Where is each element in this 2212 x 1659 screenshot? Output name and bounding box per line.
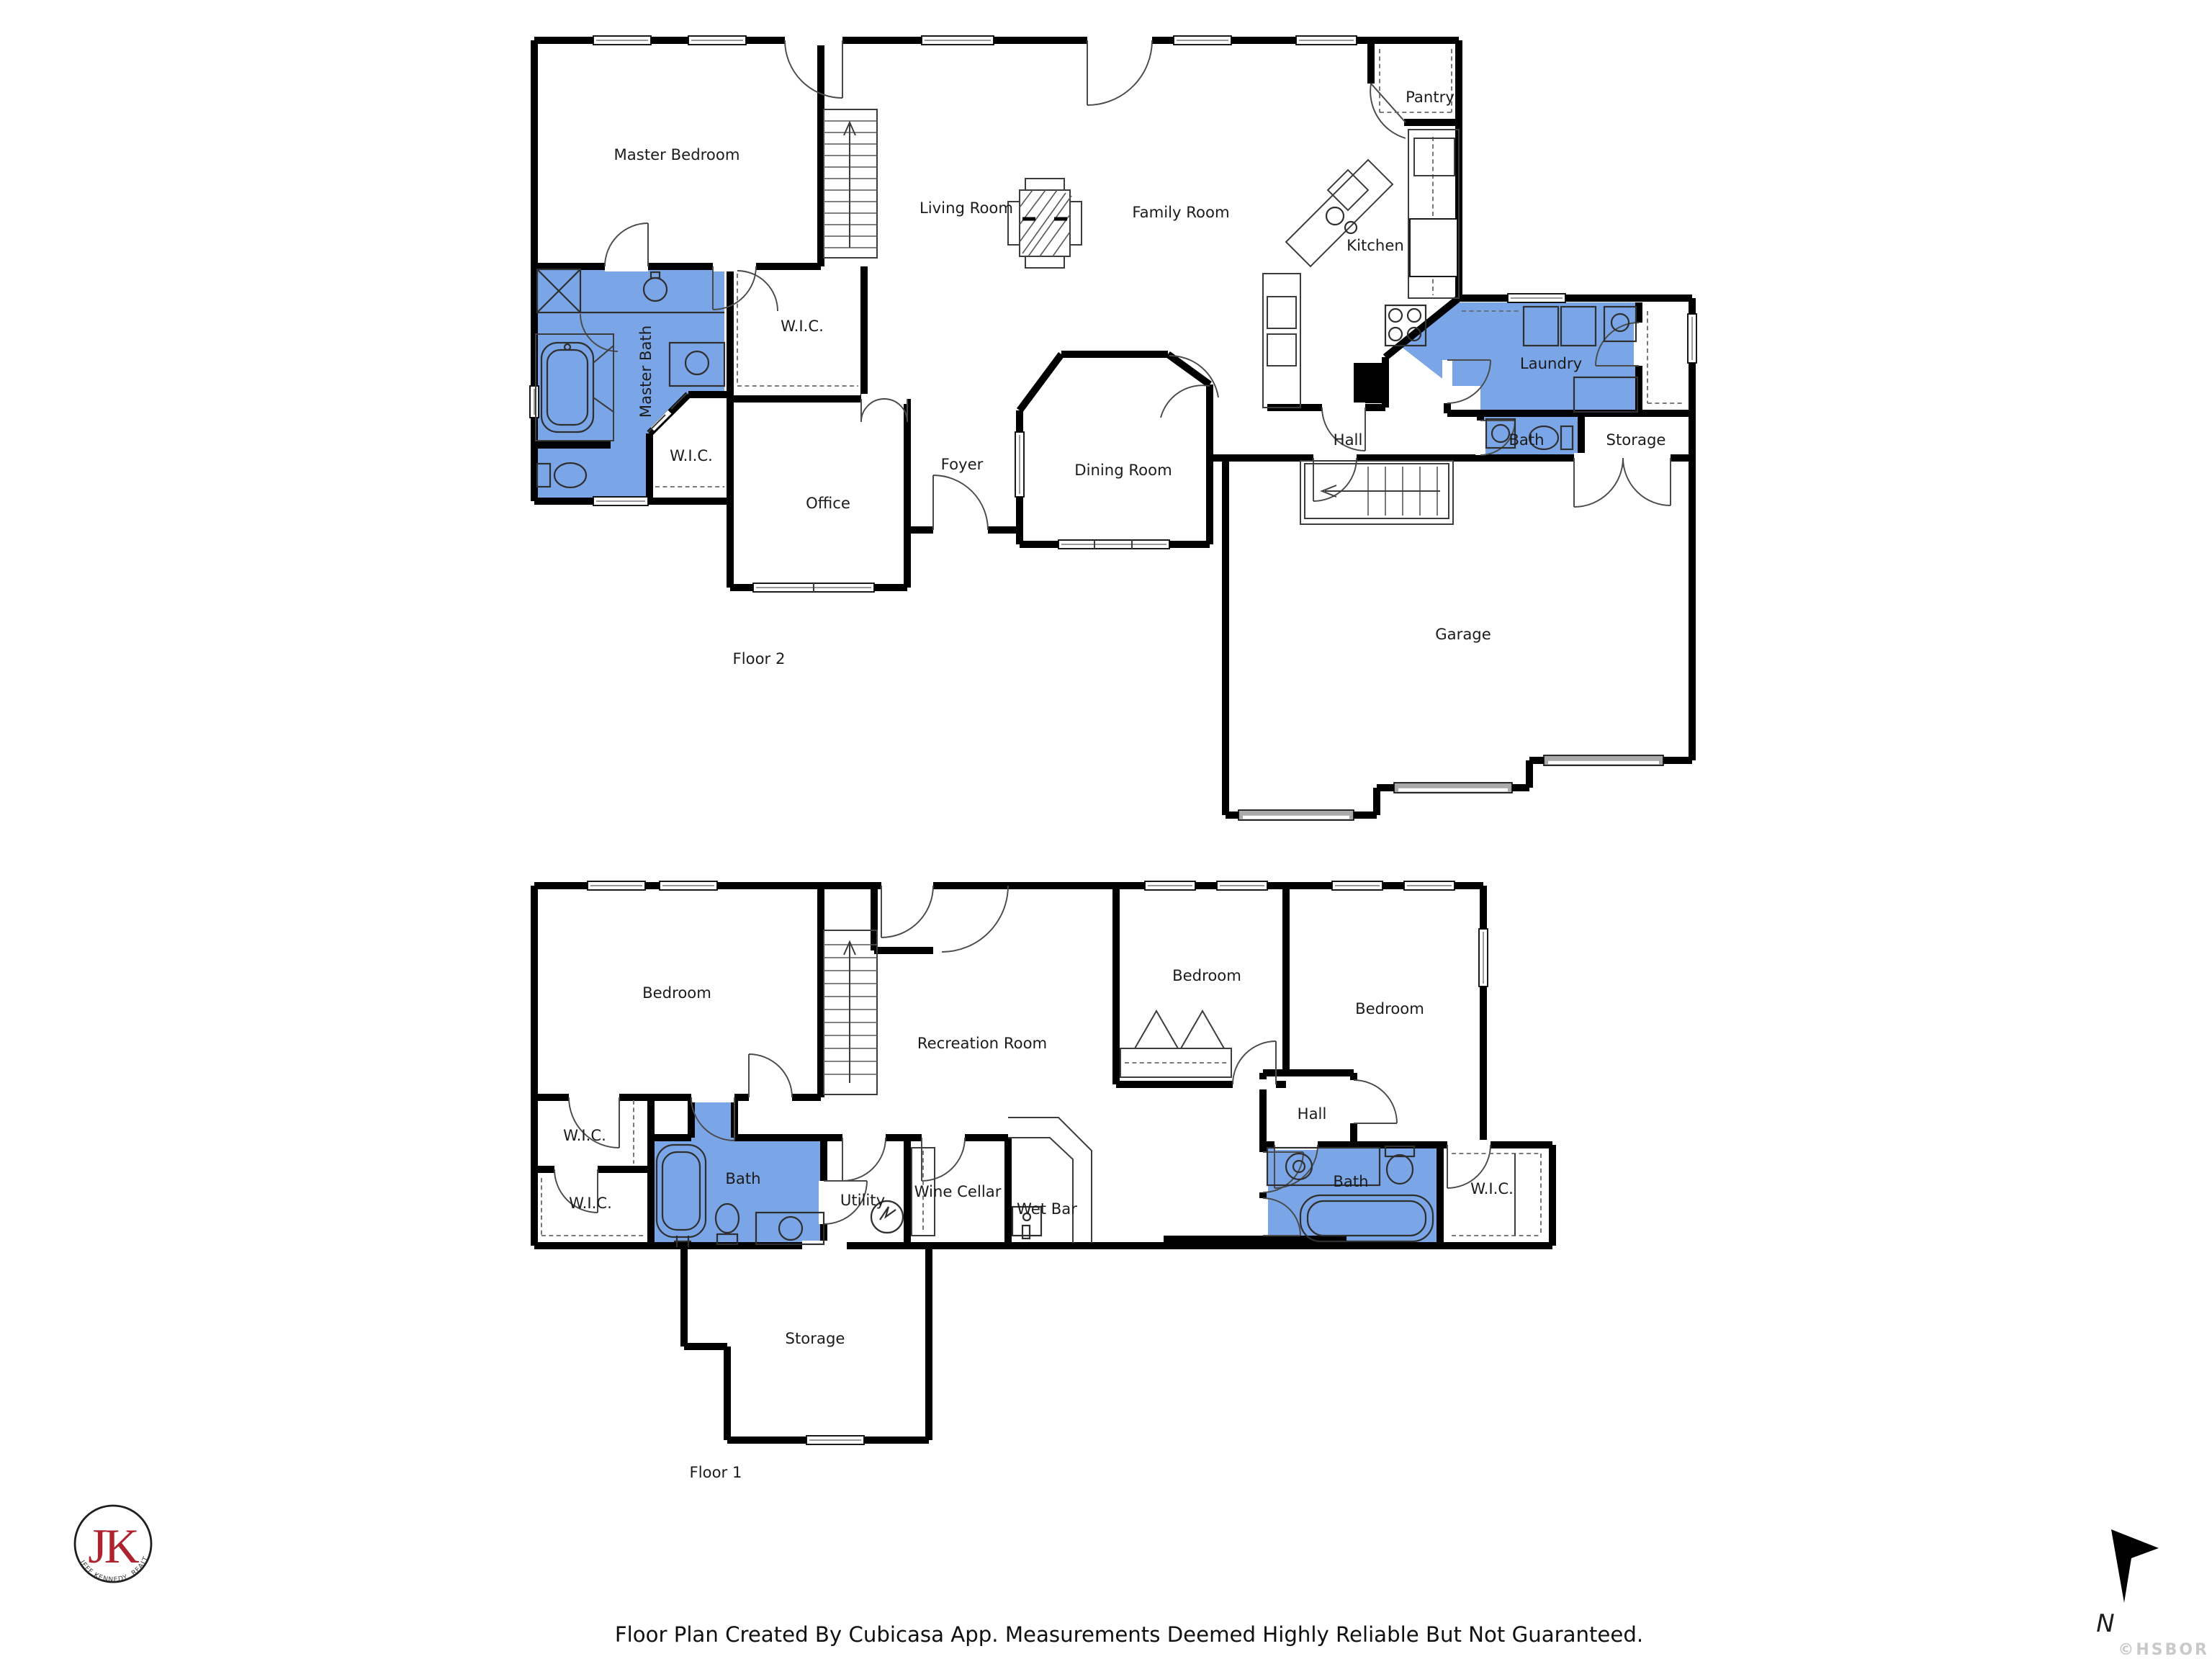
north-arrow-icon [2111,1529,2159,1603]
floor1-caption: Floor 1 [690,1463,742,1481]
room-label-storage-f1: Storage [786,1329,845,1347]
room-label-recreation-room: Recreation Room [917,1034,1047,1052]
room-label-pantry: Pantry [1406,88,1455,106]
floor-plan-page: Master Bedroom Living Room Family Room K… [0,0,2212,1659]
room-label-utility: Utility [840,1191,885,1209]
room-label-laundry: Laundry [1520,354,1582,372]
wet-bar-counter [1008,1118,1092,1243]
room-label-wic-right: W.I.C. [1470,1179,1514,1197]
room-label-bedroom-right: Bedroom [1355,999,1424,1017]
room-label-wet-bar: Wet Bar [1017,1200,1077,1218]
room-label-bath-left: Bath [725,1169,760,1187]
room-label-family-room: Family Room [1132,203,1229,221]
floor2-plan: Master Bedroom Living Room Family Room K… [530,35,1696,820]
room-label-living-room: Living Room [920,199,1013,217]
room-label-master-bedroom: Master Bedroom [614,145,740,163]
floor2-caption: Floor 2 [733,649,786,667]
watermark: ©HSBOR [2118,1641,2209,1659]
realtor-logo: JK JEFF KENNEDY, REALTOR® [0,0,151,1584]
room-label-bedroom-middle: Bedroom [1172,966,1241,984]
disclaimer-text: Floor Plan Created By Cubicasa App. Meas… [615,1622,1643,1647]
floor1-stairs [824,930,877,1094]
room-label-wic-lower-f1: W.I.C. [569,1194,612,1212]
room-label-kitchen: Kitchen [1346,236,1404,254]
room-label-hall-f1: Hall [1298,1105,1327,1123]
room-label-bath-right: Bath [1333,1172,1368,1190]
north-arrow: N [2096,1529,2159,1638]
room-label-wine-cellar: Wine Cellar [914,1182,1002,1200]
floor2-master-bath-highlight [534,266,724,501]
floor2-stairs-down [1300,461,1453,524]
logo-tagline: JEFF KENNEDY, REALTOR® [0,0,150,1584]
room-label-garage: Garage [1435,625,1491,643]
fireplace-island [1008,179,1082,268]
room-label-dining-room: Dining Room [1074,461,1172,479]
room-label-hall-f2: Hall [1334,431,1363,449]
north-label: N [2096,1609,2114,1638]
room-label-wic-lower-f2: W.I.C. [670,446,713,464]
floor-plan-canvas: Master Bedroom Living Room Family Room K… [0,0,2212,1659]
room-label-foyer: Foyer [941,455,984,473]
room-label-storage-f2: Storage [1606,431,1666,449]
room-label-office: Office [806,494,850,512]
room-label-wic-upper-f2: W.I.C. [781,317,824,335]
closet-bifold [1120,1011,1231,1077]
room-label-bedroom-left: Bedroom [642,984,711,1002]
room-label-bath-f2: Bath [1509,431,1544,449]
floor1-plan: Bedroom Recreation Room Bedroom Bedroom … [534,881,1552,1481]
floor2-stairs-up [824,109,877,258]
room-label-master-bath: Master Bath [637,325,655,418]
garage-door-bars [1238,755,1663,820]
logo-initials: JK [88,1519,139,1573]
room-label-wic-upper-f1: W.I.C. [563,1126,606,1144]
